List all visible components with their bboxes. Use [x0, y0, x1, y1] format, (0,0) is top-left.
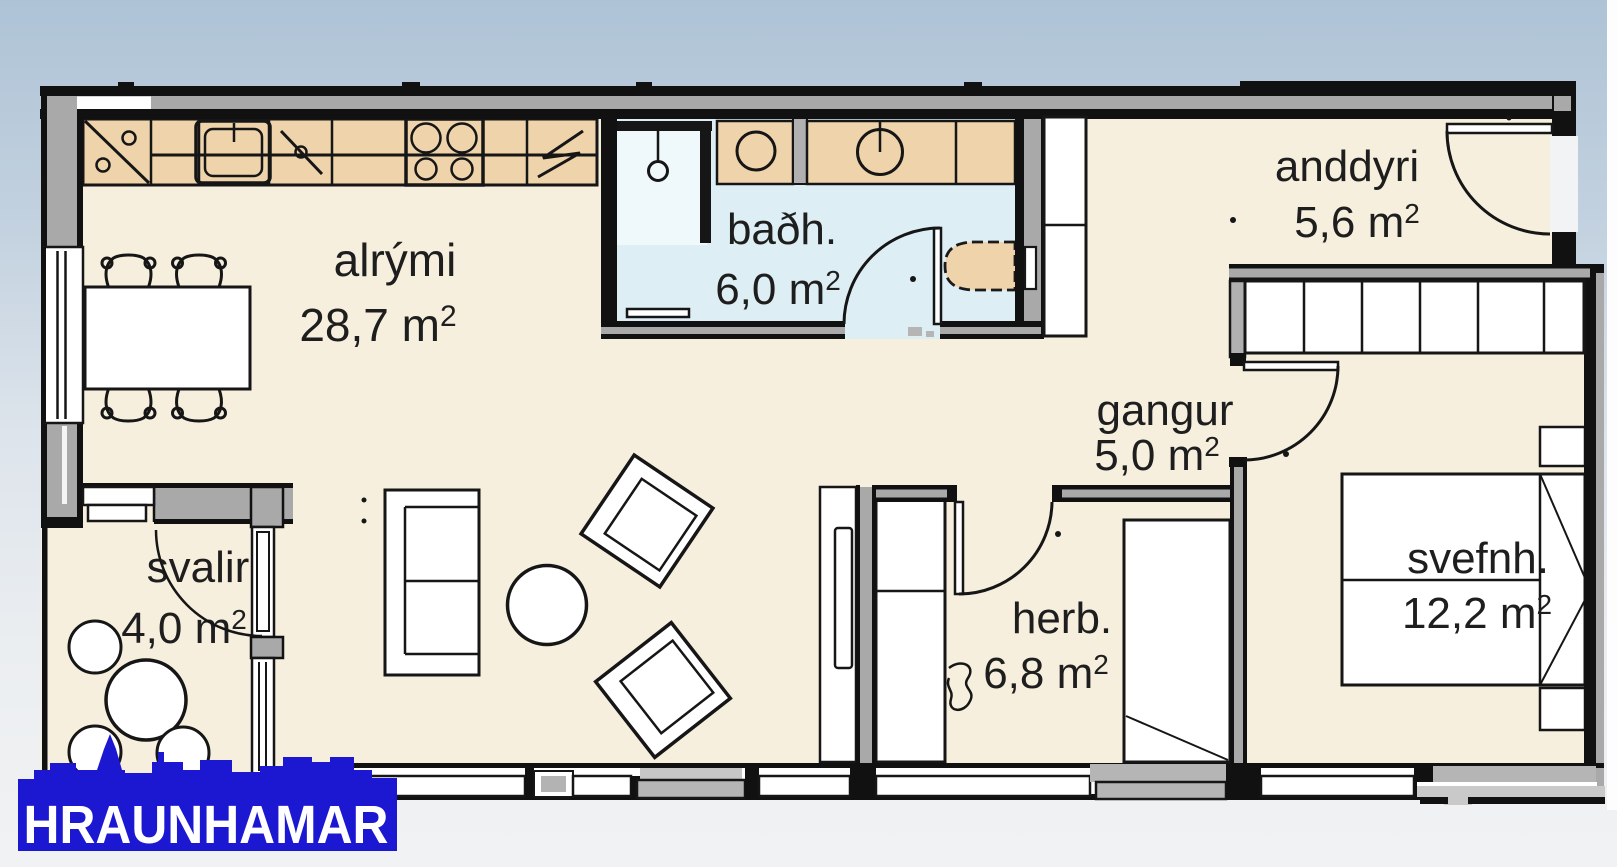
svg-text:HRAUNHAMAR: HRAUNHAMAR: [24, 795, 389, 855]
svg-text:anddyri: anddyri: [1275, 142, 1419, 191]
svg-text:12,2 m2: 12,2 m2: [1402, 589, 1552, 638]
svg-text:28,7 m2: 28,7 m2: [299, 299, 456, 351]
svg-text:alrými: alrými: [334, 234, 457, 286]
svg-text:svefnh.: svefnh.: [1407, 534, 1549, 583]
svg-text:baðh.: baðh.: [727, 205, 837, 254]
svg-text:5,6 m2: 5,6 m2: [1294, 198, 1420, 247]
svg-text:6,0 m2: 6,0 m2: [715, 265, 841, 314]
svg-text:gangur: gangur: [1096, 386, 1233, 435]
svg-text:herb.: herb.: [1012, 594, 1112, 643]
svg-text:4,0 m2: 4,0 m2: [121, 604, 247, 653]
svg-text:6,8 m2: 6,8 m2: [983, 649, 1109, 698]
svg-text:5,0 m2: 5,0 m2: [1094, 431, 1220, 480]
